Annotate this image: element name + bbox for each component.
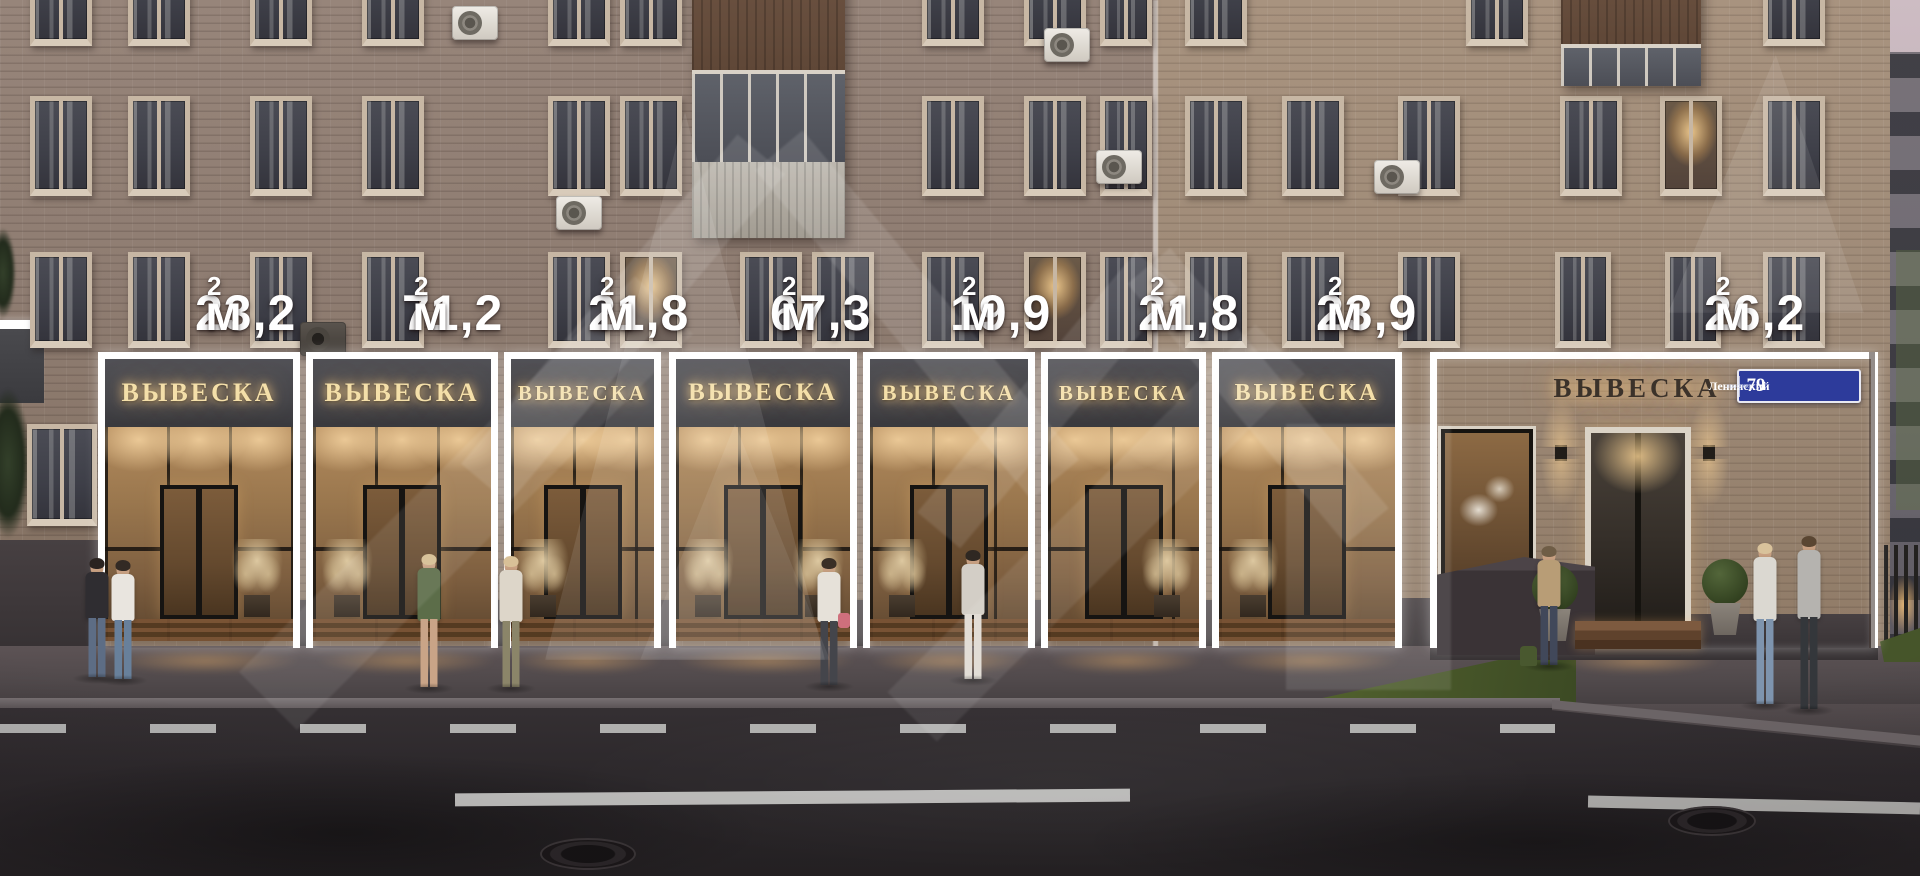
window	[1185, 0, 1247, 46]
ac-unit	[1374, 160, 1420, 194]
display-window	[1441, 429, 1533, 577]
window	[250, 0, 312, 46]
sign-fascia: ВЫВЕСКА	[511, 359, 654, 427]
shop-sign: ВЫВЕСКА	[882, 380, 1016, 406]
person	[812, 560, 846, 686]
window	[548, 96, 610, 196]
entrance-door	[1268, 485, 1346, 619]
plant	[231, 539, 283, 617]
storefront-unit-2: ВЫВЕСКА	[306, 352, 498, 648]
entrance-door	[724, 485, 802, 619]
balcony-panel	[692, 162, 845, 238]
plant	[682, 539, 734, 617]
window	[250, 96, 312, 196]
road-marking-dashed	[0, 724, 1555, 733]
window	[1282, 96, 1344, 196]
wood-slats	[1048, 619, 1199, 641]
window	[27, 424, 97, 526]
person	[106, 562, 140, 680]
light-pool	[1048, 648, 1203, 674]
person	[1532, 548, 1566, 666]
entrance-door	[160, 485, 238, 619]
ac-unit	[556, 196, 602, 230]
bush	[0, 228, 16, 318]
plant	[321, 539, 373, 617]
wood-slats	[313, 619, 491, 641]
window	[620, 96, 682, 196]
plant	[1141, 539, 1193, 617]
shop-sign: ВЫВЕСКА	[325, 378, 480, 408]
window	[1100, 0, 1152, 46]
sign-fascia: ВЫВЕСКА	[870, 359, 1028, 427]
window	[1763, 96, 1825, 196]
storefront-glass	[1048, 427, 1199, 641]
sign-fascia: ВЫВЕСКА	[1048, 359, 1199, 427]
storefront-unit-7: ВЫВЕСКА	[1212, 352, 1402, 648]
sign-fascia: ВЫВЕСКА	[676, 359, 850, 427]
light-pool	[512, 648, 662, 674]
person	[956, 552, 990, 680]
window	[30, 252, 92, 348]
ac-unit	[300, 322, 346, 356]
sign-fascia: ВЫВЕСКА	[1219, 359, 1395, 427]
bush	[0, 388, 30, 538]
architectural-render: ВЫВЕСКА ВЫВЕСКА ВЫВЕСКА ВЫВЕСКА	[0, 0, 1920, 876]
person	[1748, 545, 1782, 705]
storefront-glass	[870, 427, 1028, 641]
wood-slats	[870, 619, 1028, 641]
ac-unit	[452, 6, 498, 40]
manhole	[1668, 806, 1756, 836]
light-pool	[870, 648, 1030, 674]
wall-lamp-icon	[1703, 445, 1715, 461]
wood-slats	[1219, 619, 1395, 641]
plant	[1227, 539, 1279, 617]
light-pool	[316, 648, 496, 674]
storefront-glass	[511, 427, 654, 641]
window	[30, 96, 92, 196]
window	[362, 96, 424, 196]
window	[1763, 0, 1825, 46]
window	[1555, 252, 1611, 348]
shop-sign: ВЫВЕСКА	[518, 381, 647, 406]
address-plate: Ленинский проспект 79	[1737, 369, 1861, 403]
curb	[0, 698, 1560, 708]
light-pool	[1220, 648, 1400, 674]
window	[1660, 96, 1722, 196]
entrance-steps	[1575, 621, 1701, 649]
sign-fascia: ВЫВЕСКА	[105, 359, 293, 427]
window	[922, 0, 984, 46]
house-number: 79	[1739, 375, 1773, 397]
window	[1185, 96, 1247, 196]
manhole	[540, 838, 636, 870]
window	[30, 0, 92, 46]
balcony-panel	[692, 0, 845, 70]
balcony	[692, 0, 845, 238]
plinth	[1402, 598, 1432, 652]
wall-lamp-icon	[1555, 445, 1567, 461]
storefront-unit-6: ВЫВЕСКА	[1041, 352, 1206, 648]
balcony-glazing	[692, 70, 845, 162]
window	[922, 96, 984, 196]
balcony-panel	[1561, 0, 1701, 44]
window	[1560, 96, 1622, 196]
storefront-glass	[313, 427, 491, 641]
balcony-glazing	[1561, 44, 1701, 86]
shop-sign: ВЫВЕСКА	[688, 379, 838, 407]
window	[1024, 96, 1086, 196]
person	[494, 558, 528, 688]
storefront-glass	[1219, 427, 1395, 641]
plant	[876, 539, 928, 617]
shop-sign: ВЫВЕСКА	[122, 378, 277, 408]
entrance-door	[1585, 427, 1691, 633]
window	[1466, 0, 1528, 46]
window	[128, 0, 190, 46]
balcony	[1561, 0, 1701, 86]
window	[128, 252, 190, 348]
ac-unit	[1096, 150, 1142, 184]
topiary-bush	[1701, 559, 1749, 635]
sign-fascia: ВЫВЕСКА	[313, 359, 491, 427]
drainpipe	[1869, 352, 1875, 648]
shop-sign: ВЫВЕСКА	[1059, 381, 1188, 406]
background-building-panels	[1896, 250, 1920, 510]
shop-sign: ВЫВЕСКА	[1235, 380, 1380, 407]
window	[620, 0, 682, 46]
window	[362, 0, 424, 46]
storefront-unit-5: ВЫВЕСКА	[863, 352, 1035, 648]
wood-slats	[511, 619, 654, 641]
ac-unit	[1044, 28, 1090, 62]
person	[412, 556, 446, 688]
window	[128, 96, 190, 196]
window	[548, 0, 610, 46]
person	[1792, 538, 1826, 710]
